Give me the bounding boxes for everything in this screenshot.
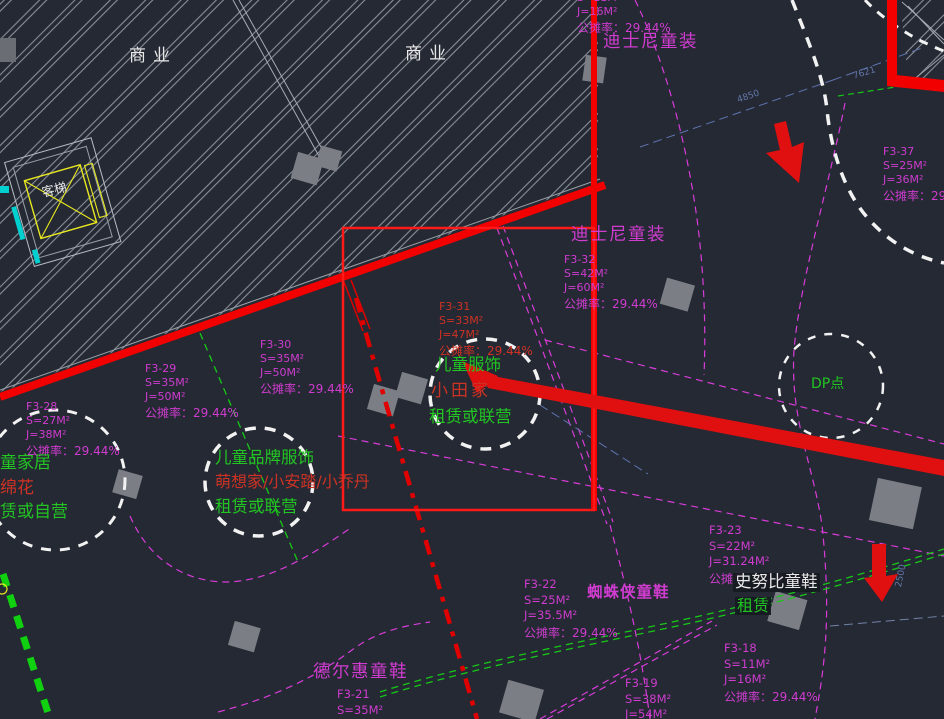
gross-label: J=35.5M² [524,608,618,624]
share-ratio-label: 公摊率：29.44% [883,189,944,203]
parcel-id: F3-32 [564,253,658,267]
arrow-top-right [766,121,804,183]
gross-label: J=54M² [625,707,671,719]
store-label-disney: 迪士尼童装 [603,32,698,52]
parcel-id: F3-31 [439,300,533,314]
share-ratio-label: 公摊率：29.44% [577,21,671,35]
area-label: S=22M² [709,539,803,555]
store-label-home: 童家居 [0,454,51,474]
gross-label: J=16M² [577,5,671,19]
area-label: S=35M² [337,703,383,719]
gross-label: J=47M² [439,328,533,342]
arrow-bottom-right [864,544,898,602]
share-ratio-label: 公摊率：29.44% [524,626,618,642]
area-label: S=25M² [883,159,944,173]
zone-label-commercial: 商业 [405,45,453,65]
parcel-f3-29: F3-29 S=35M² J=50M² 公摊率：29.44% [145,362,239,420]
store-label-xiaotianjia: 小田家 [431,382,491,402]
area-label: S=27M² [26,414,120,428]
share-ratio-label: 公摊率：29.44% [260,382,354,396]
parcel-f3-32: F3-32 S=42M² J=60M² 公摊率：29.44% [564,253,658,311]
parcel-f3-21: F3-21 S=35M² J=50M² [337,687,383,719]
area-label: S=11M² [724,657,818,673]
area-label: S=35M² [145,376,239,390]
parcel-id: F3-37 [883,145,944,159]
parcel-id: F3-29 [145,362,239,376]
parcel-f3-30: F3-30 S=35M² J=50M² 公摊率：29.44% [260,338,354,396]
gross-label: J=50M² [260,366,354,380]
area-label: S=33M² [439,314,533,328]
parcel-id: F3-30 [260,338,354,352]
store-label-disney: 迪士尼童装 [571,225,666,245]
store-label-deerhui: 德尔惠童鞋 [313,662,408,682]
gross-label: J=31.24M² [709,554,803,570]
share-ratio-label: 公摊率：29.44% [724,690,818,706]
gross-label: J=50M² [145,390,239,404]
lease-mode-label: 租赁或联营 [215,498,298,517]
lease-mode-label: 租赁或联营 [429,408,512,427]
parcel-f3-37: F3-37 S=25M² J=36M² 公摊率：29.44% [883,145,944,203]
parcel-f3-19: F3-19 S=38M² J=54M² [625,676,671,719]
cad-viewport[interactable]: 商业 商业 客梯 迪士尼童装 迪士尼童装 S=11M² J=16M² 公摊率：2… [0,0,944,719]
parcel-id: F3-19 [625,676,671,692]
gross-label: J=38M² [26,428,120,442]
share-ratio-label: 公摊率：29.44% [564,297,658,311]
area-label: S=42M² [564,267,658,281]
lease-mode-label: 租赁 [735,597,771,615]
parcel-id: F3-21 [337,687,383,703]
share-ratio-label: 公摊率：29.44% [145,406,239,420]
area-label: S=35M² [260,352,354,366]
dp-point-label: DP点 [811,376,844,392]
parcel-id: F3-28 [26,400,120,414]
leader-shaft [482,374,944,476]
gross-label: J=60M² [564,281,658,295]
store-label-brands: 萌想家/小安踏/小乔丹 [215,473,370,491]
parcel-f3-28: F3-28 S=27M² J=38M² 公摊率：29.44% [26,400,120,458]
store-label-spiderman: 蜘蛛侠童鞋 [587,584,670,602]
gross-label: J=36M² [883,173,944,187]
store-label-cotton: 绵花 [0,479,34,499]
gross-label: J=16M² [724,672,818,688]
lease-mode-label: 赁或自营 [0,503,68,523]
parcel-id: F3-18 [724,641,818,657]
parcel-top-edge: S=11M² J=16M² 公摊率：29.44% [577,0,671,35]
parcel-f3-31: F3-31 S=33M² J=47M² 公摊率：29.44% [439,300,533,358]
parcel-f3-18: F3-18 S=11M² J=16M² 公摊率：29.44% [724,641,818,705]
store-label-snoopy: 史努比童鞋 [733,573,820,592]
store-label-kids-apparel: 儿童服饰 [435,356,501,375]
zone-label-commercial: 商业 [129,47,177,67]
store-label-kids-brand: 儿童品牌服饰 [215,449,314,468]
parcel-id: F3-23 [709,523,803,539]
area-label: S=38M² [625,692,671,708]
